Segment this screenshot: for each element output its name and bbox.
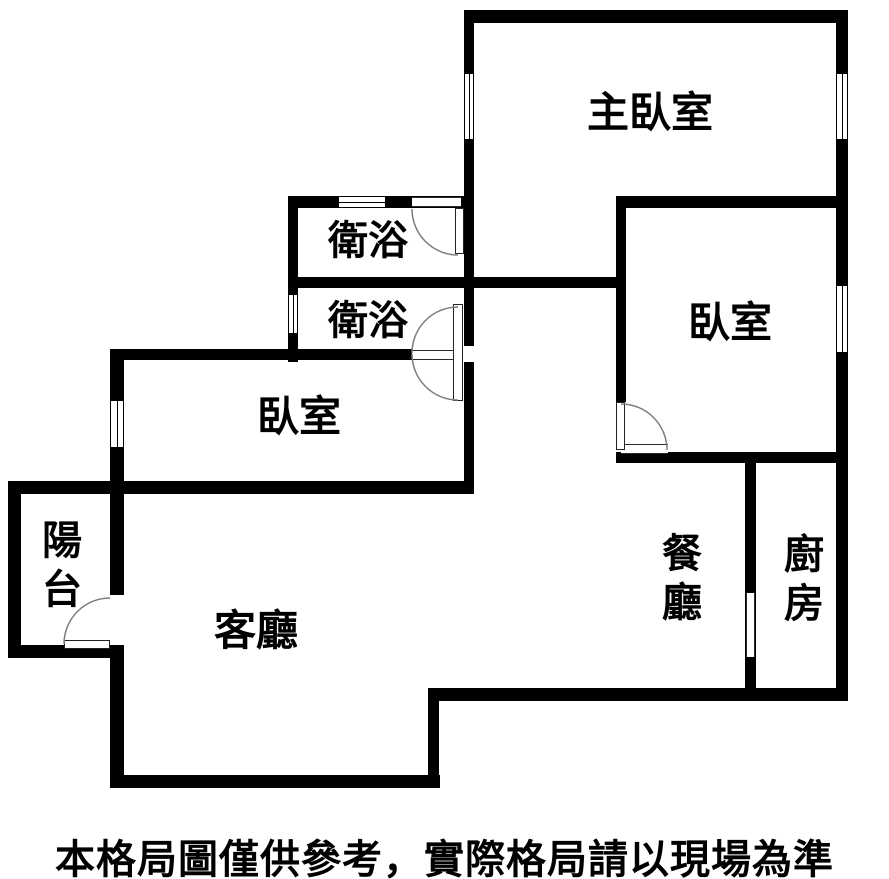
door-arc-bathroom-top [412, 209, 458, 255]
room-label-living-room: 客廳 [214, 610, 298, 652]
room-label-bedroom-right: 臥室 [688, 302, 772, 344]
door-swing-arcs [0, 0, 889, 810]
floor-plan: 主臥室 衛浴 衛浴 臥室 臥室 陽台 客廳 餐廳 廚房 本格局圖僅供參考，實際格… [0, 0, 889, 879]
room-label-master-bedroom: 主臥室 [587, 92, 713, 134]
disclaimer-caption: 本格局圖僅供參考，實際格局請以現場為準 [0, 827, 889, 879]
room-label-bathroom-top: 衛浴 [328, 221, 408, 261]
door-arc-bathroom-bottom-up [412, 307, 458, 353]
room-label-bathroom-bottom: 衛浴 [328, 301, 408, 341]
room-label-kitchen: 廚房 [780, 533, 820, 631]
room-label-balcony: 陽台 [38, 519, 78, 617]
door-arc-bedroom-left [412, 354, 458, 400]
door-arc-bedroom-right [621, 404, 667, 450]
room-label-dining-room: 餐廳 [658, 532, 698, 630]
room-label-bedroom-left: 臥室 [257, 396, 341, 438]
